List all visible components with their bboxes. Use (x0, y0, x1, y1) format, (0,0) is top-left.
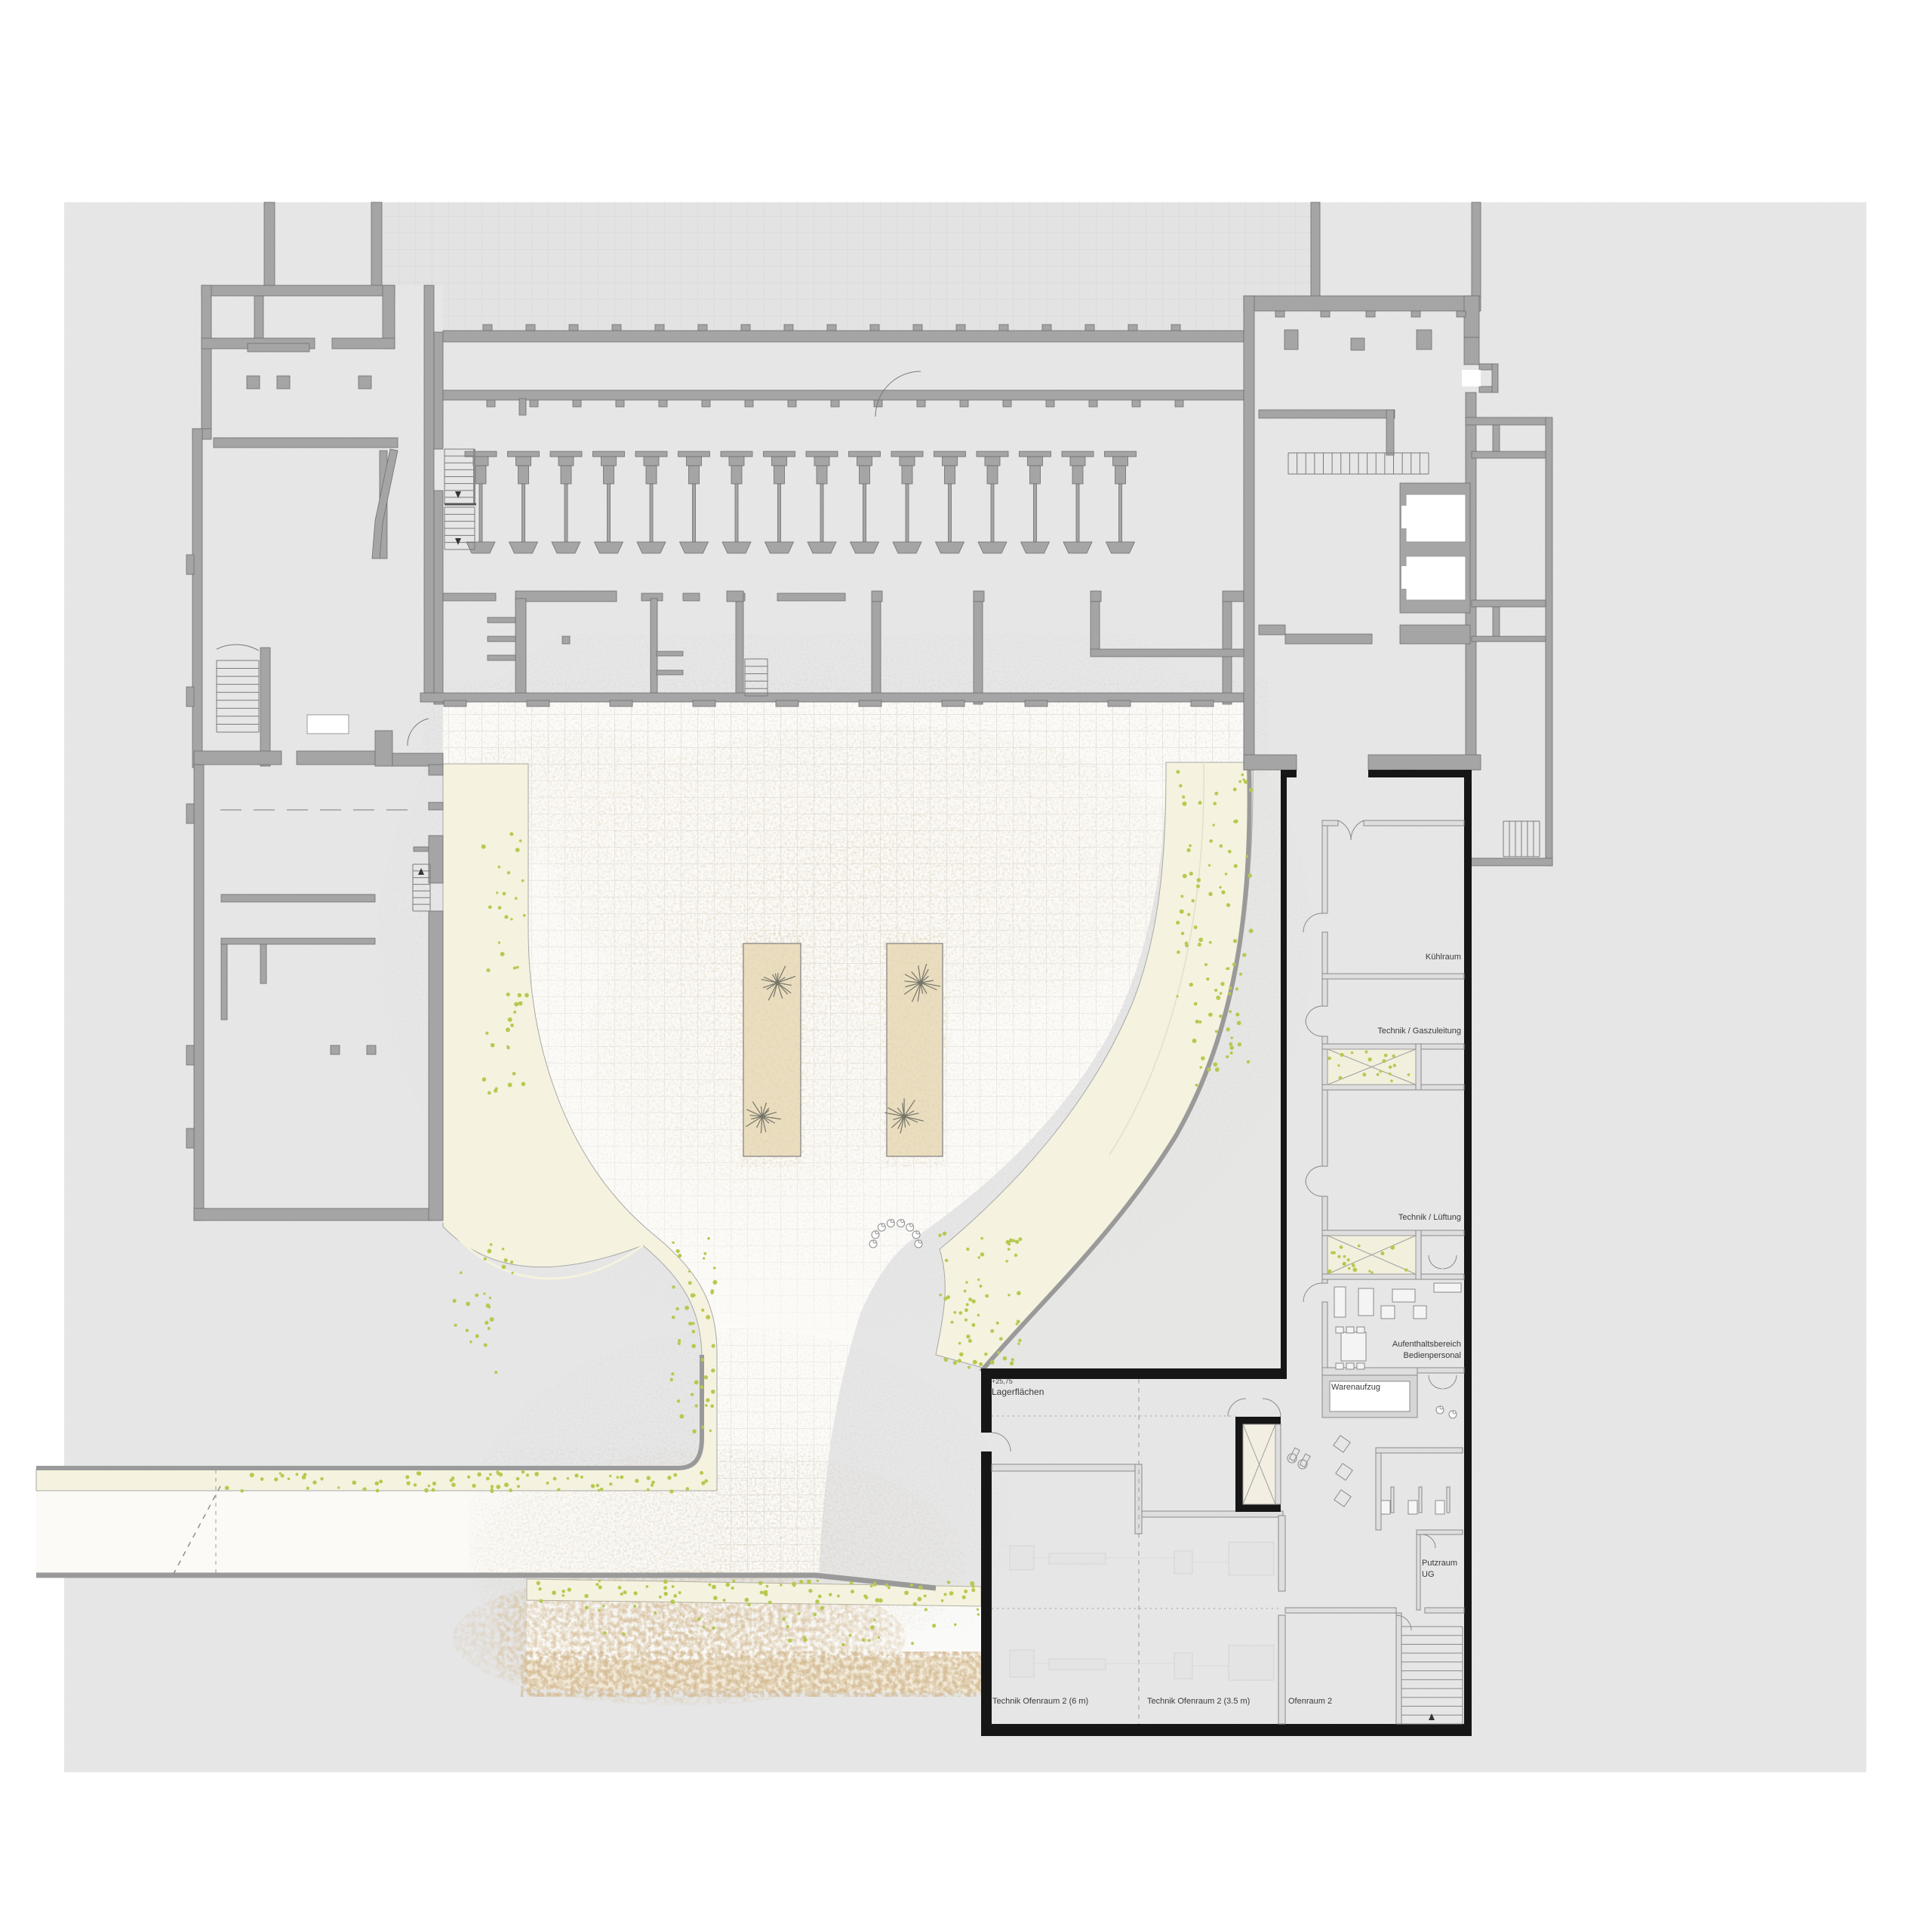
site-plan-untergeschoss: Kühlraum Technik / Gaszuleitung Technik … (0, 0, 1932, 1930)
label-ofenraum-2: Ofenraum 2 (1288, 1696, 1332, 1707)
label-level-mark: +25,75 (992, 1377, 1013, 1386)
label-aufenthaltsbereich: AufenthaltsbereichBedienpersonal (1392, 1339, 1461, 1362)
label-putzraum-ug: PutzraumUG (1422, 1558, 1457, 1581)
label-technik-lueftung: Technik / Lüftung (1398, 1212, 1461, 1224)
elevator-shaft (1235, 1417, 1281, 1512)
label-warenaufzug: Warenaufzug (1331, 1382, 1380, 1393)
label-technik-ofenraum-6m: Technik Ofenraum 2 (6 m) (992, 1696, 1088, 1707)
floor-plan-drawing (0, 0, 1932, 1930)
label-lagerflaechen: Lagerflächen (992, 1387, 1044, 1398)
label-kuehlraum: Kühlraum (1426, 952, 1461, 963)
label-technik-gaszuleitung: Technik / Gaszuleitung (1377, 1026, 1461, 1037)
label-technik-ofenraum-35m: Technik Ofenraum 2 (3.5 m) (1147, 1696, 1250, 1707)
courtyard (382, 202, 1311, 331)
